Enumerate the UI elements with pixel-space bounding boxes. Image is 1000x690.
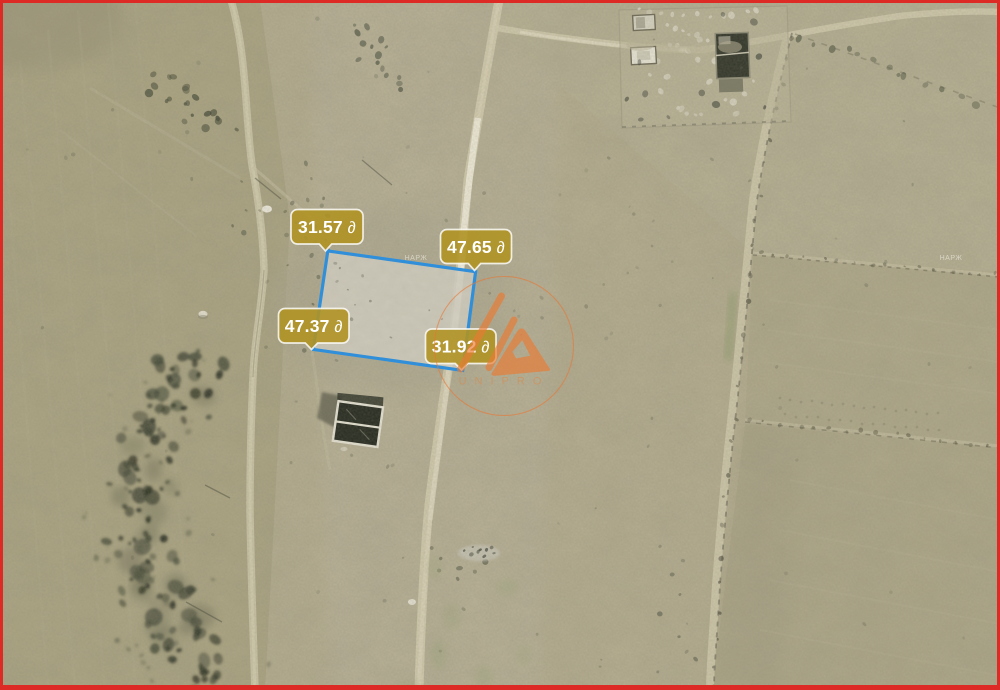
svg-text:47.65 ∂: 47.65 ∂ <box>447 237 505 257</box>
svg-text:47.37 ∂: 47.37 ∂ <box>285 316 343 336</box>
svg-text:НАРЖ: НАРЖ <box>940 255 963 262</box>
svg-text:31.57 ∂: 31.57 ∂ <box>298 217 356 237</box>
svg-text:НАРЖ: НАРЖ <box>405 255 428 262</box>
svg-text:UNIPRO: UNIPRO <box>459 376 550 388</box>
